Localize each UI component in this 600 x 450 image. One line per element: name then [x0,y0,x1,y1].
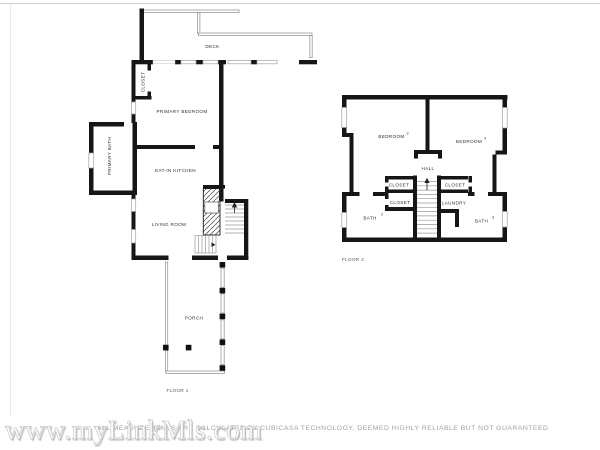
room-label-primary-bath: PRIMARY BATH [107,137,112,175]
watermark-text: www.myLinkMls.com [5,414,262,446]
room-label-bedroom3: BEDROOM [456,139,482,144]
stair-up-arrow-icon-f2 [424,178,429,183]
floorplan-page: { "floor1": { "label": "FLOOR 1", "rooms… [0,0,600,450]
stair-landing-box [205,202,219,213]
room-label-laundry: LAUNDRY [442,201,466,206]
floor1-windows [89,61,277,244]
room-label-living-room: LIVING ROOM [152,222,186,227]
room-label-porch: PORCH [185,316,203,321]
floor1-title: FLOOR 1 [167,388,189,393]
room-label-deck: DECK [205,44,220,49]
deck-railing [142,10,312,58]
room-label-bath2: BATH [363,216,376,221]
room-label-bedroom2-number: 2 [407,132,409,136]
room-label-closet-right: CLOSET [445,183,465,188]
floor2-title: FLOOR 2 [342,257,364,262]
room-label-hall: HALL [422,166,435,171]
floor1-stairs [195,189,244,253]
floor1-plan: DECK CLOSET PRIMARY BEDROOM PRIMARY BATH… [89,9,317,394]
room-label-eat-in-kitchen: EAT-IN KITCHEN [155,168,196,173]
room-label-closet-f1: CLOSET [141,72,146,92]
room-label-closet-upper-left: CLOSET [389,183,409,188]
room-label-bath2-number: 2 [381,213,383,217]
room-label-bath3: BATH [475,219,488,224]
floor2-stairs [417,178,437,233]
floorplan-canvas: DECK CLOSET PRIMARY BEDROOM PRIMARY BATH… [0,0,600,450]
room-label-bath3-number: 3 [492,216,494,220]
room-label-closet-lower-left: CLOSET [390,200,410,205]
room-label-bedroom3-number: 3 [484,137,486,141]
room-label-bedroom2: BEDROOM [378,134,404,139]
room-label-primary-bedroom: PRIMARY BEDROOM [156,109,207,114]
floor2-plan: BEDROOM 2 BEDROOM 3 HALL CLOSET CLOSET C… [342,95,508,262]
